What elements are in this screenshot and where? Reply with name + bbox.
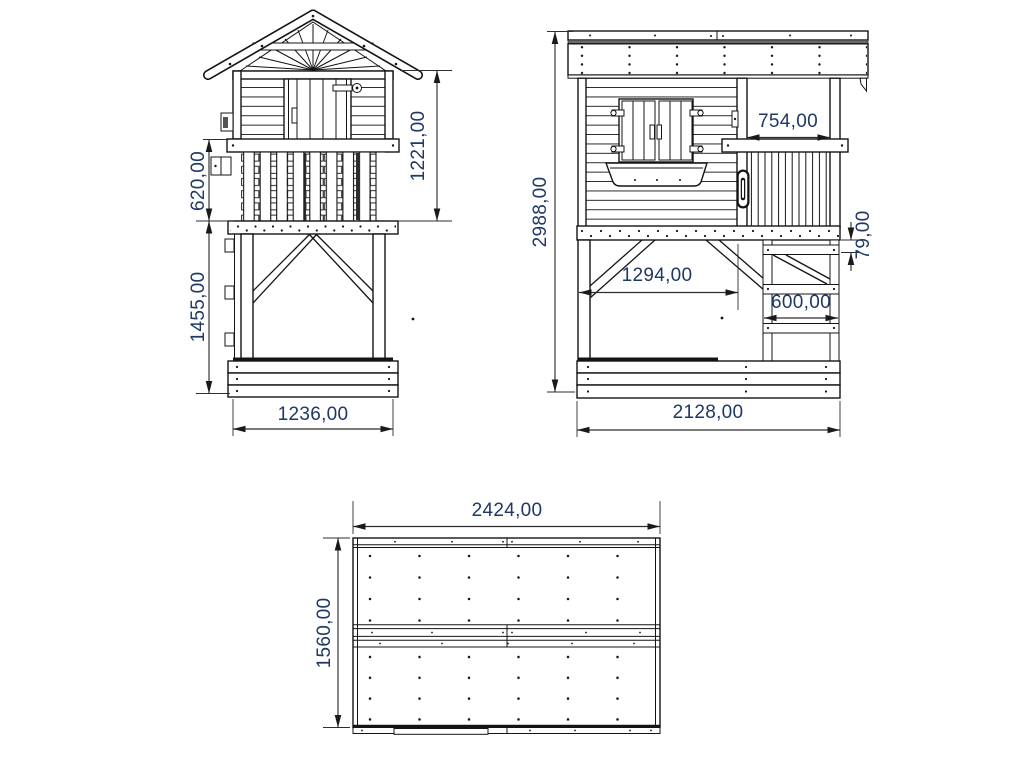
ridge-board [568,31,868,40]
dimension-span: 1294,00 [579,244,738,310]
fence-pickets [241,152,385,221]
plan-flower-box [394,729,488,735]
diagonal-braces [253,234,373,303]
roof-corner [860,78,867,91]
flower-box [606,163,707,186]
front-leg-left [578,240,590,361]
dimension-label: 620,00 [188,151,209,211]
dimension-rung-gap: 79,00 [841,210,874,271]
dimension-roof-depth: 1560,00 [314,538,350,728]
wall-header [233,71,393,79]
dimension-label: 600,00 [771,292,831,313]
corner-post-right [385,71,393,139]
corner-post-left [233,71,241,139]
dimension-label: 1455,00 [188,272,209,343]
side-gable [208,15,418,76]
side-sandbox [228,358,398,398]
balcony-rail [722,139,848,152]
side-door [284,79,362,140]
dimension-label: 1294,00 [622,265,693,286]
dimension-total-height: 2988,00 [530,32,575,393]
dimension-label: 2424,00 [472,500,543,521]
dimension-label: 754,00 [758,111,818,132]
leg-right [373,234,385,361]
dimension-label: 79,00 [853,210,874,259]
leg-bracket [225,333,234,346]
shutter-handle-icon [650,125,655,139]
balcony-top-rail [227,139,399,152]
speck [412,318,415,321]
side-balcony [211,139,399,234]
shutter-right [659,101,692,160]
dimension-balcony-width: 754,00 [747,111,830,138]
side-view: 620,00 1455,00 1221,00 1236,00 [188,15,452,437]
dimension-front-width: 2128,00 [577,401,840,437]
balusters [748,152,830,228]
dimension-roof-length: 2424,00 [353,500,660,534]
drawing-svg: 620,00 1455,00 1221,00 1236,00 [0,0,1024,768]
front-view: 2988,00 754,00 79,00 1294,00 600,00 2128… [530,31,874,437]
roof-half-lower [358,648,655,724]
door-handle-icon [292,108,297,123]
dimension-label: 2128,00 [673,402,744,423]
leg-left [241,234,253,361]
plan-view: 2424,00 1560,00 [314,500,660,734]
technical-drawing-canvas: 620,00 1455,00 1221,00 1236,00 [0,0,1024,768]
dimension-label: 2988,00 [530,177,551,248]
side-understructure [225,234,414,361]
ladder-rung [763,245,839,255]
dimension-label: 1236,00 [278,404,349,425]
front-sandbox [577,358,840,399]
door-latch-icon [333,85,352,91]
plan-bottom-band [353,726,660,734]
dimension-side-width: 1236,00 [233,399,393,436]
dimension-upper-height: 1221,00 [398,71,452,222]
dimension-label: 1560,00 [314,598,335,669]
dimension-label: 1221,00 [408,111,429,182]
front-corner-post-right [830,78,840,228]
roof-half-upper [358,548,655,624]
ladder-rung [763,324,839,334]
front-corner-post-left [578,78,586,228]
leg-bracket [225,239,234,252]
speck [721,317,724,320]
front-window [611,99,703,162]
dimension-ladder-width: 600,00 [764,292,838,318]
dimension-lower-height: 1455,00 [188,221,230,394]
shutter-handle-icon [657,125,662,139]
leg-bracket [225,286,234,299]
side-cabin-wall [221,71,393,141]
